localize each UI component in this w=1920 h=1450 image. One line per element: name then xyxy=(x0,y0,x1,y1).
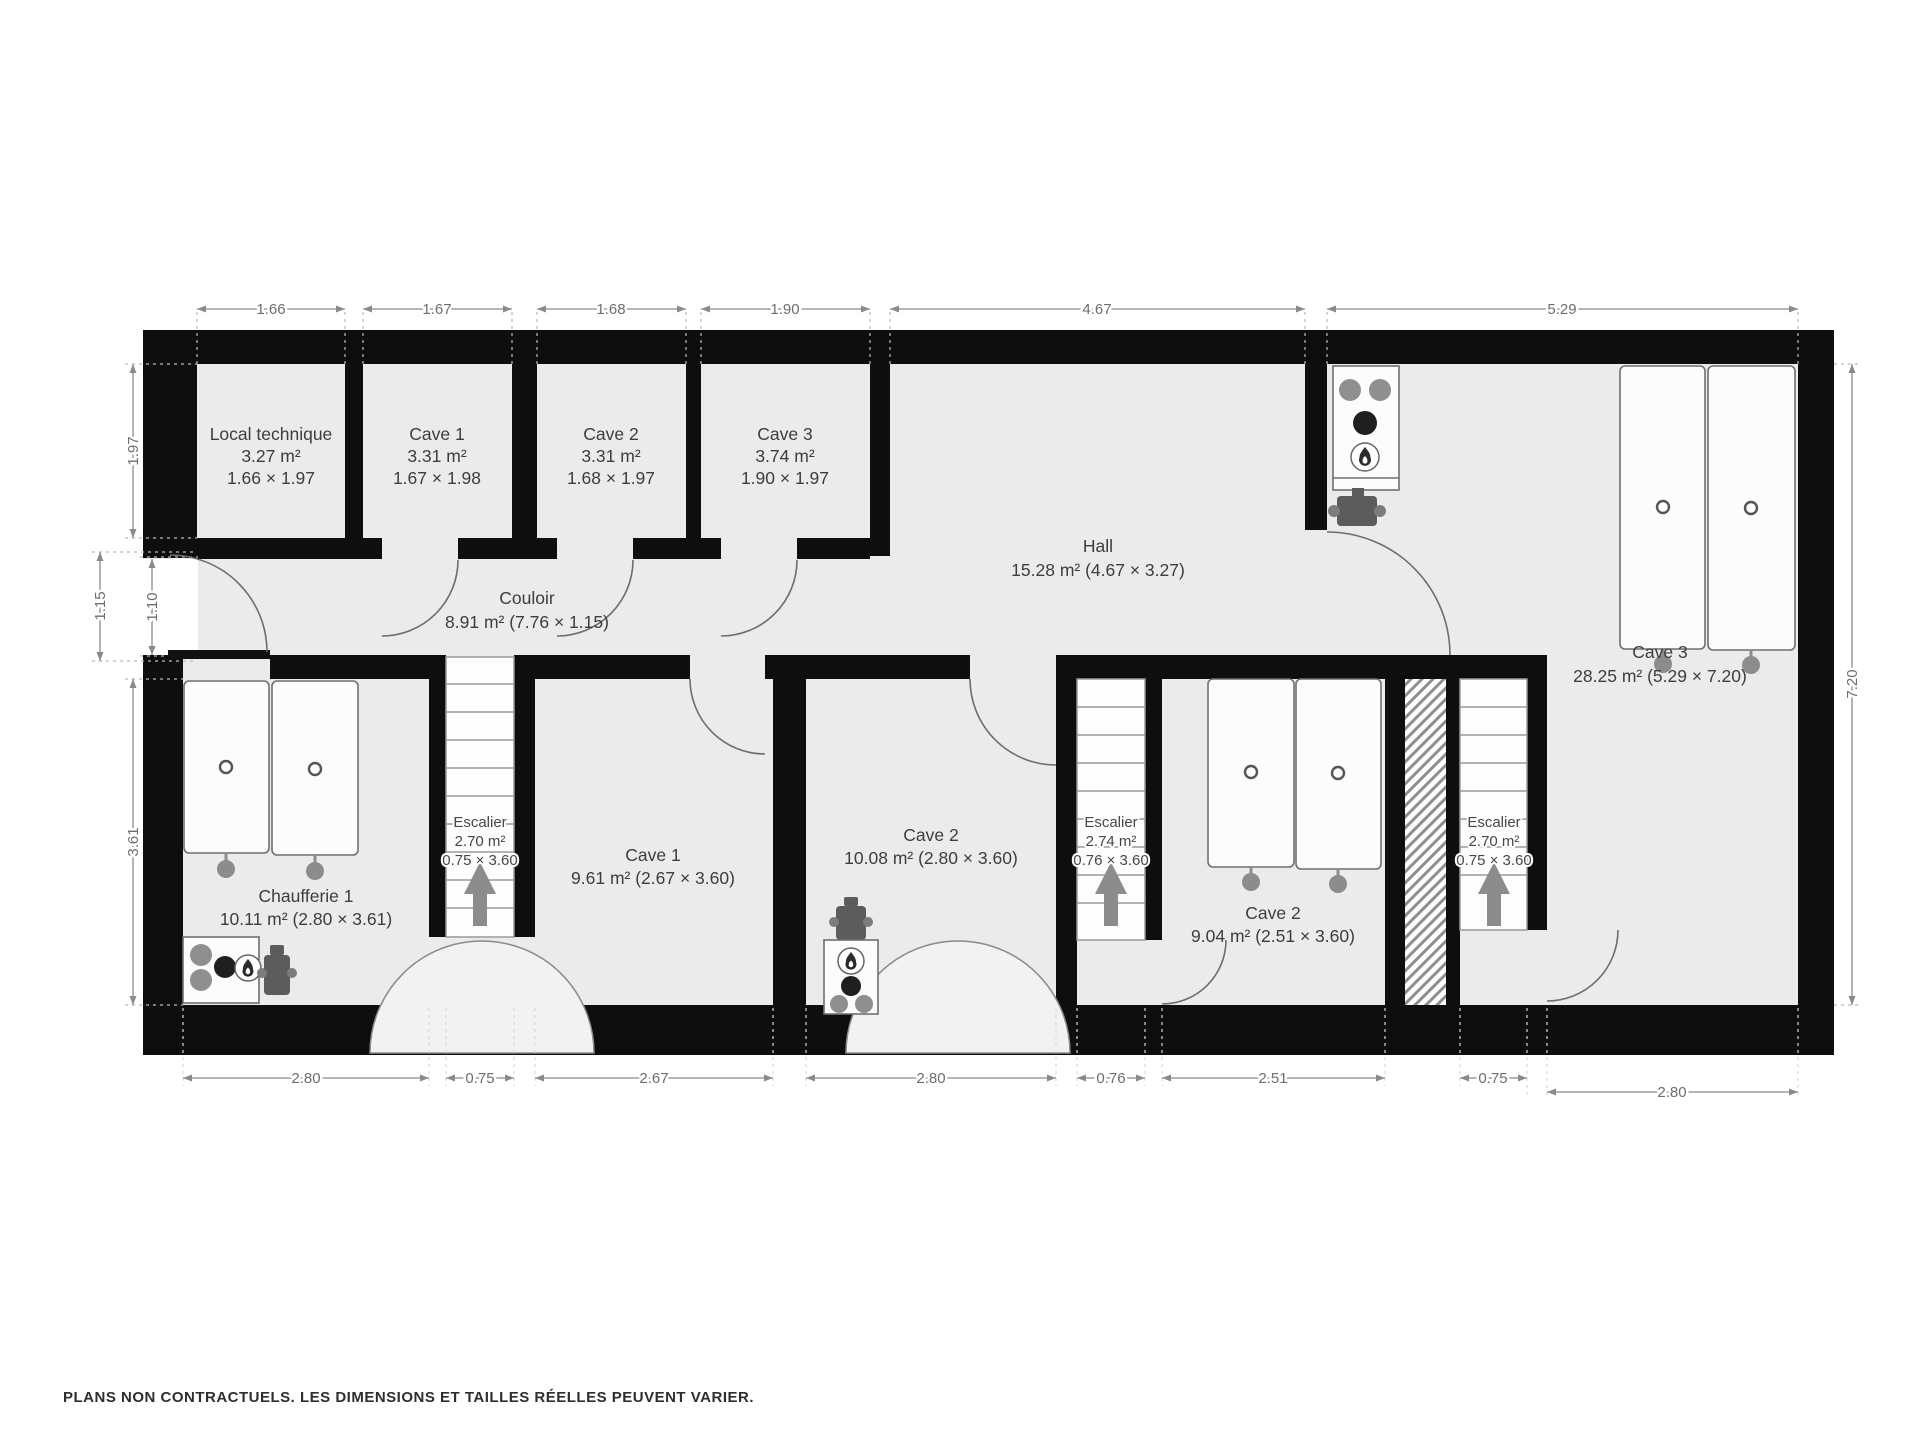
dim-top-4: 1.90 xyxy=(770,301,799,318)
svg-text:3.74 m²: 3.74 m² xyxy=(755,446,814,466)
dim-left-2: 1.15 xyxy=(92,591,109,620)
svg-text:Cave 3: Cave 3 xyxy=(757,424,812,444)
entrance-door-leaf xyxy=(168,650,270,659)
svg-text:15.28 m² (4.67 × 3.27): 15.28 m² (4.67 × 3.27) xyxy=(1011,560,1185,580)
svg-text:9.04 m² (2.51 × 3.60): 9.04 m² (2.51 × 3.60) xyxy=(1191,926,1355,946)
dim-bottom-8: 2.80 xyxy=(1657,1084,1686,1101)
svg-text:2.70 m²: 2.70 m² xyxy=(455,833,506,850)
boiler-chaufferie xyxy=(183,937,297,1003)
building xyxy=(140,330,1834,1055)
dim-right-1: 7.20 xyxy=(1844,669,1861,698)
svg-text:Cave 2: Cave 2 xyxy=(1245,903,1300,923)
svg-text:Cave 3: Cave 3 xyxy=(1632,642,1687,662)
svg-text:1.67 × 1.98: 1.67 × 1.98 xyxy=(393,468,481,488)
svg-text:10.08 m² (2.80 × 3.60): 10.08 m² (2.80 × 3.60) xyxy=(844,848,1018,868)
dim-bottom-1: 2.80 xyxy=(291,1070,320,1087)
svg-text:9.61 m² (2.67 × 3.60): 9.61 m² (2.67 × 3.60) xyxy=(571,868,735,888)
svg-text:Cave 2: Cave 2 xyxy=(583,424,638,444)
svg-text:Escalier: Escalier xyxy=(1467,814,1520,831)
staircase-3 xyxy=(1460,679,1527,930)
wardrobe-cave2-right xyxy=(1208,679,1381,893)
svg-text:10.11 m² (2.80 × 3.61): 10.11 m² (2.80 × 3.61) xyxy=(220,909,392,929)
svg-text:Hall: Hall xyxy=(1083,536,1113,556)
staircase-2 xyxy=(1077,679,1145,940)
svg-text:0.76 × 3.60: 0.76 × 3.60 xyxy=(1073,852,1148,869)
dim-top-5: 4.67 xyxy=(1082,301,1111,318)
svg-text:1.66 × 1.97: 1.66 × 1.97 xyxy=(227,468,315,488)
dim-left-1: 1.97 xyxy=(125,436,142,465)
dim-top-3: 1.68 xyxy=(596,301,625,318)
svg-text:3.27 m²: 3.27 m² xyxy=(241,446,300,466)
svg-text:Local technique: Local technique xyxy=(210,424,333,444)
dim-left-4: 3.61 xyxy=(125,827,142,856)
svg-text:2.74 m²: 2.74 m² xyxy=(1086,833,1137,850)
floor-plan-canvas: 1.66 1.67 1.68 1.90 4.67 5.29 2.80 0.75 … xyxy=(0,0,1920,1450)
disclaimer-text: PLANS NON CONTRACTUELS. LES DIMENSIONS E… xyxy=(63,1389,754,1406)
dim-bottom-5: 0.76 xyxy=(1096,1070,1125,1087)
dim-bottom-3: 2.67 xyxy=(639,1070,668,1087)
svg-text:0.75 × 3.60: 0.75 × 3.60 xyxy=(442,852,517,869)
dim-bottom-4: 2.80 xyxy=(916,1070,945,1087)
dim-top-6: 5.29 xyxy=(1547,301,1576,318)
svg-text:3.31 m²: 3.31 m² xyxy=(581,446,640,466)
svg-text:3.31 m²: 3.31 m² xyxy=(407,446,466,466)
svg-text:8.91 m² (7.76 × 1.15): 8.91 m² (7.76 × 1.15) xyxy=(445,612,609,632)
dim-top-2: 1.67 xyxy=(422,301,451,318)
svg-text:Cave 1: Cave 1 xyxy=(625,845,680,865)
svg-text:Escalier: Escalier xyxy=(453,814,506,831)
svg-text:1.90 × 1.97: 1.90 × 1.97 xyxy=(741,468,829,488)
svg-text:Chaufferie 1: Chaufferie 1 xyxy=(258,886,353,906)
svg-text:Escalier: Escalier xyxy=(1084,814,1137,831)
dim-left-3: 1.10 xyxy=(144,592,161,621)
svg-text:0.75 × 3.60: 0.75 × 3.60 xyxy=(1456,852,1531,869)
svg-text:1.68 × 1.97: 1.68 × 1.97 xyxy=(567,468,655,488)
svg-text:2.70 m²: 2.70 m² xyxy=(1469,833,1520,850)
staircase-1 xyxy=(446,657,514,937)
svg-text:Cave 1: Cave 1 xyxy=(409,424,464,444)
dim-bottom-2: 0.75 xyxy=(465,1070,494,1087)
wardrobe-cave3-right xyxy=(1620,366,1795,674)
svg-text:Couloir: Couloir xyxy=(499,588,555,608)
svg-text:Cave 2: Cave 2 xyxy=(903,825,958,845)
hatched-shaft xyxy=(1405,679,1446,1005)
dim-top-1: 1.66 xyxy=(256,301,285,318)
floor-plan-page: 1.66 1.67 1.68 1.90 4.67 5.29 2.80 0.75 … xyxy=(0,0,1920,1450)
svg-text:28.25 m² (5.29 × 7.20): 28.25 m² (5.29 × 7.20) xyxy=(1573,666,1747,686)
dim-bottom-6: 2.51 xyxy=(1258,1070,1287,1087)
dim-bottom-7: 0.75 xyxy=(1478,1070,1507,1087)
